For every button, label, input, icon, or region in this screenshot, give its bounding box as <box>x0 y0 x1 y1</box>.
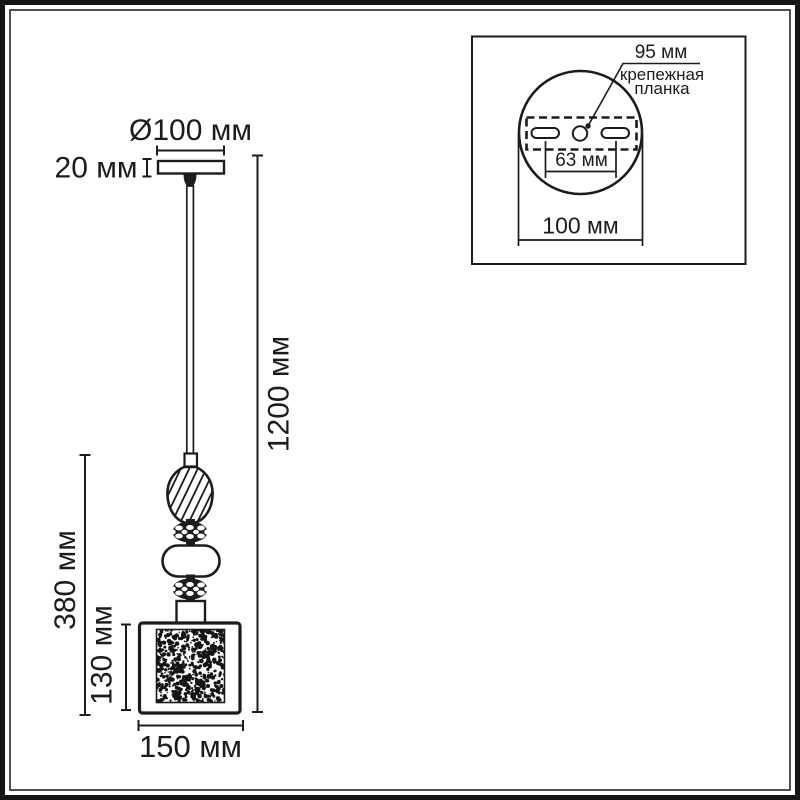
bracket-label-line2: планка <box>634 79 690 98</box>
diagram-canvas: Ø100 мм 20 мм 1200 мм 380 мм 130 мм 150 … <box>0 0 800 800</box>
shade-neck <box>177 601 206 624</box>
cord-grip <box>184 174 197 188</box>
body-height-dim: 380 мм <box>49 530 82 630</box>
canopy-height-dim: 20 мм <box>55 152 138 185</box>
swirl-finial <box>167 467 212 524</box>
bracket-length-dim: 95 мм <box>635 42 688 63</box>
cord <box>187 186 194 455</box>
center-hole <box>573 126 587 140</box>
shade-width-dim: 150 мм <box>139 729 242 764</box>
pendant-dimension-diagram: Ø100 мм 20 мм 1200 мм 380 мм 130 мм 150 … <box>0 0 800 800</box>
canopy-diameter-dim: Ø100 мм <box>129 114 252 147</box>
ornate-bead-top <box>171 522 208 543</box>
pendant-drawing <box>140 161 259 713</box>
bracket-slot-right <box>602 128 630 138</box>
bracket-slot-left <box>532 128 560 138</box>
finial-connector <box>185 454 198 467</box>
pill-element <box>163 546 220 577</box>
ornate-bead-bottom <box>171 579 208 600</box>
shade-height-dim: 130 мм <box>86 605 119 705</box>
canopy <box>158 161 224 174</box>
plate-diameter-dim: 100 мм <box>542 213 618 239</box>
hole-spacing-dim: 63 мм <box>555 150 608 171</box>
suspension-height-dim: 1200 мм <box>263 336 296 452</box>
mounting-plate-inset: 95 мм крепежная планка 63 мм 100 мм <box>472 37 746 265</box>
